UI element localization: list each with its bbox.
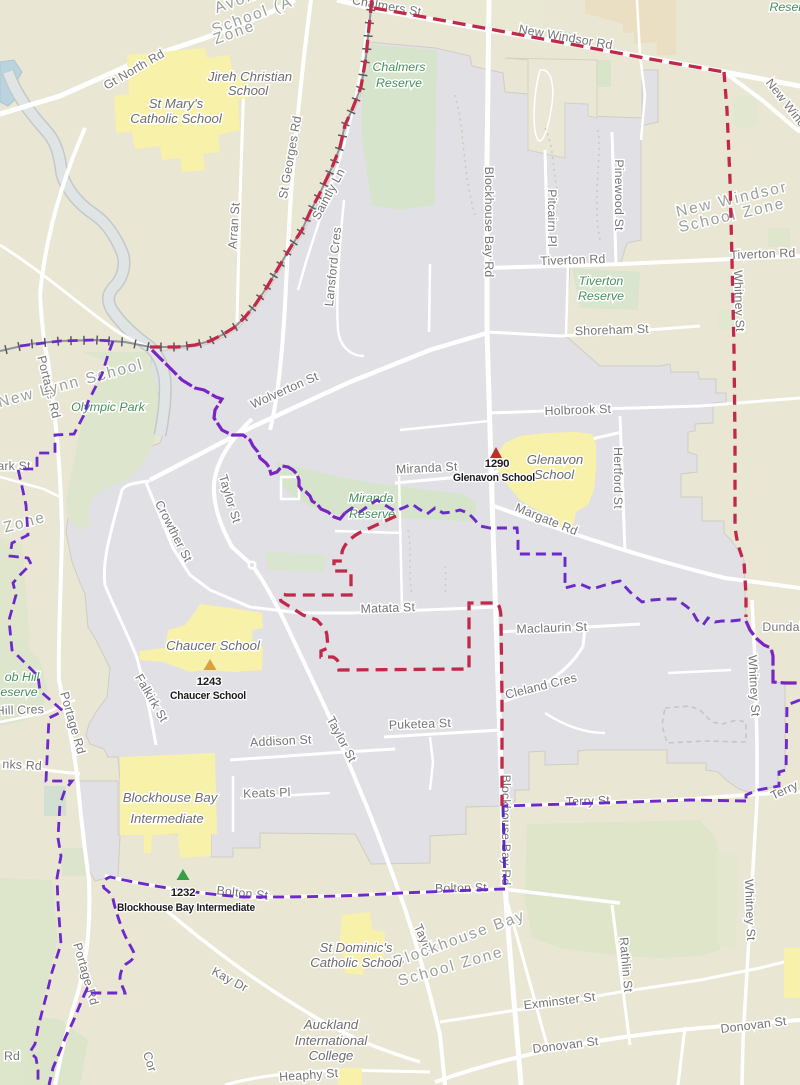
svg-text:Jireh Christian: Jireh Christian (207, 69, 292, 84)
svg-text:Puketea St: Puketea St (389, 716, 452, 732)
svg-text:Shoreham St: Shoreham St (575, 322, 650, 339)
svg-text:Reser: Reser (769, 0, 800, 14)
svg-text:Intermediate: Intermediate (130, 811, 203, 826)
svg-text:Matata St: Matata St (360, 600, 415, 616)
svg-text:Keats Pl: Keats Pl (243, 785, 291, 801)
svg-text:1243: 1243 (197, 676, 222, 688)
svg-text:1232: 1232 (171, 887, 196, 899)
svg-text:International: International (295, 1033, 369, 1048)
svg-text:eserve: eserve (0, 685, 37, 699)
svg-text:Dundale: Dundale (762, 620, 800, 634)
svg-text:Tiverton Rd: Tiverton Rd (730, 246, 796, 262)
svg-text:College: College (309, 1048, 354, 1063)
svg-text:Catholic School: Catholic School (130, 111, 223, 126)
svg-text:Olympic Park: Olympic Park (71, 400, 145, 414)
svg-text:Tiverton Rd: Tiverton Rd (540, 252, 606, 268)
svg-text:Hertford St: Hertford St (611, 447, 625, 509)
svg-text:Holbrook St: Holbrook St (544, 402, 611, 418)
svg-text:Glenavon School: Glenavon School (453, 472, 535, 484)
svg-text:Miranda: Miranda (349, 491, 394, 505)
svg-text:Pinewood St: Pinewood St (612, 159, 626, 231)
svg-text:Reserve: Reserve (578, 289, 624, 303)
svg-text:Hill Cres: Hill Cres (0, 702, 44, 718)
svg-text:St Dominic's: St Dominic's (320, 940, 393, 955)
svg-text:Rd: Rd (4, 1049, 20, 1063)
svg-text:School: School (228, 83, 269, 98)
svg-text:Terry St: Terry St (566, 793, 611, 809)
svg-text:Blockhouse Bay Rd: Blockhouse Bay Rd (482, 167, 496, 278)
svg-text:Catholic School: Catholic School (310, 955, 403, 970)
svg-text:Blockhouse Bay Intermediate: Blockhouse Bay Intermediate (117, 902, 255, 914)
svg-text:Glenavon: Glenavon (527, 452, 583, 467)
svg-text:Blockhouse Bay: Blockhouse Bay (123, 790, 219, 805)
svg-text:Whitney St: Whitney St (742, 879, 758, 941)
svg-text:Chaucer School: Chaucer School (166, 638, 261, 653)
svg-text:Bolton St: Bolton St (435, 881, 487, 896)
svg-text:St Mary's: St Mary's (149, 96, 204, 111)
svg-text:School: School (534, 467, 575, 482)
svg-text:ark St: ark St (0, 459, 31, 473)
svg-text:Tiverton: Tiverton (579, 274, 624, 288)
svg-text:Pitcairn Pl: Pitcairn Pl (545, 189, 559, 247)
svg-text:Reserve: Reserve (376, 76, 422, 90)
svg-text:Maclaurin St: Maclaurin St (516, 620, 588, 636)
svg-text:Blockhouse Bay Rd: Blockhouse Bay Rd (499, 775, 513, 886)
svg-text:Chalmers: Chalmers (372, 60, 425, 74)
svg-text:1290: 1290 (485, 458, 510, 470)
svg-text:Auckland: Auckland (303, 1017, 359, 1032)
svg-text:nks Rd: nks Rd (2, 757, 42, 773)
svg-text:Chaucer School: Chaucer School (170, 690, 246, 702)
